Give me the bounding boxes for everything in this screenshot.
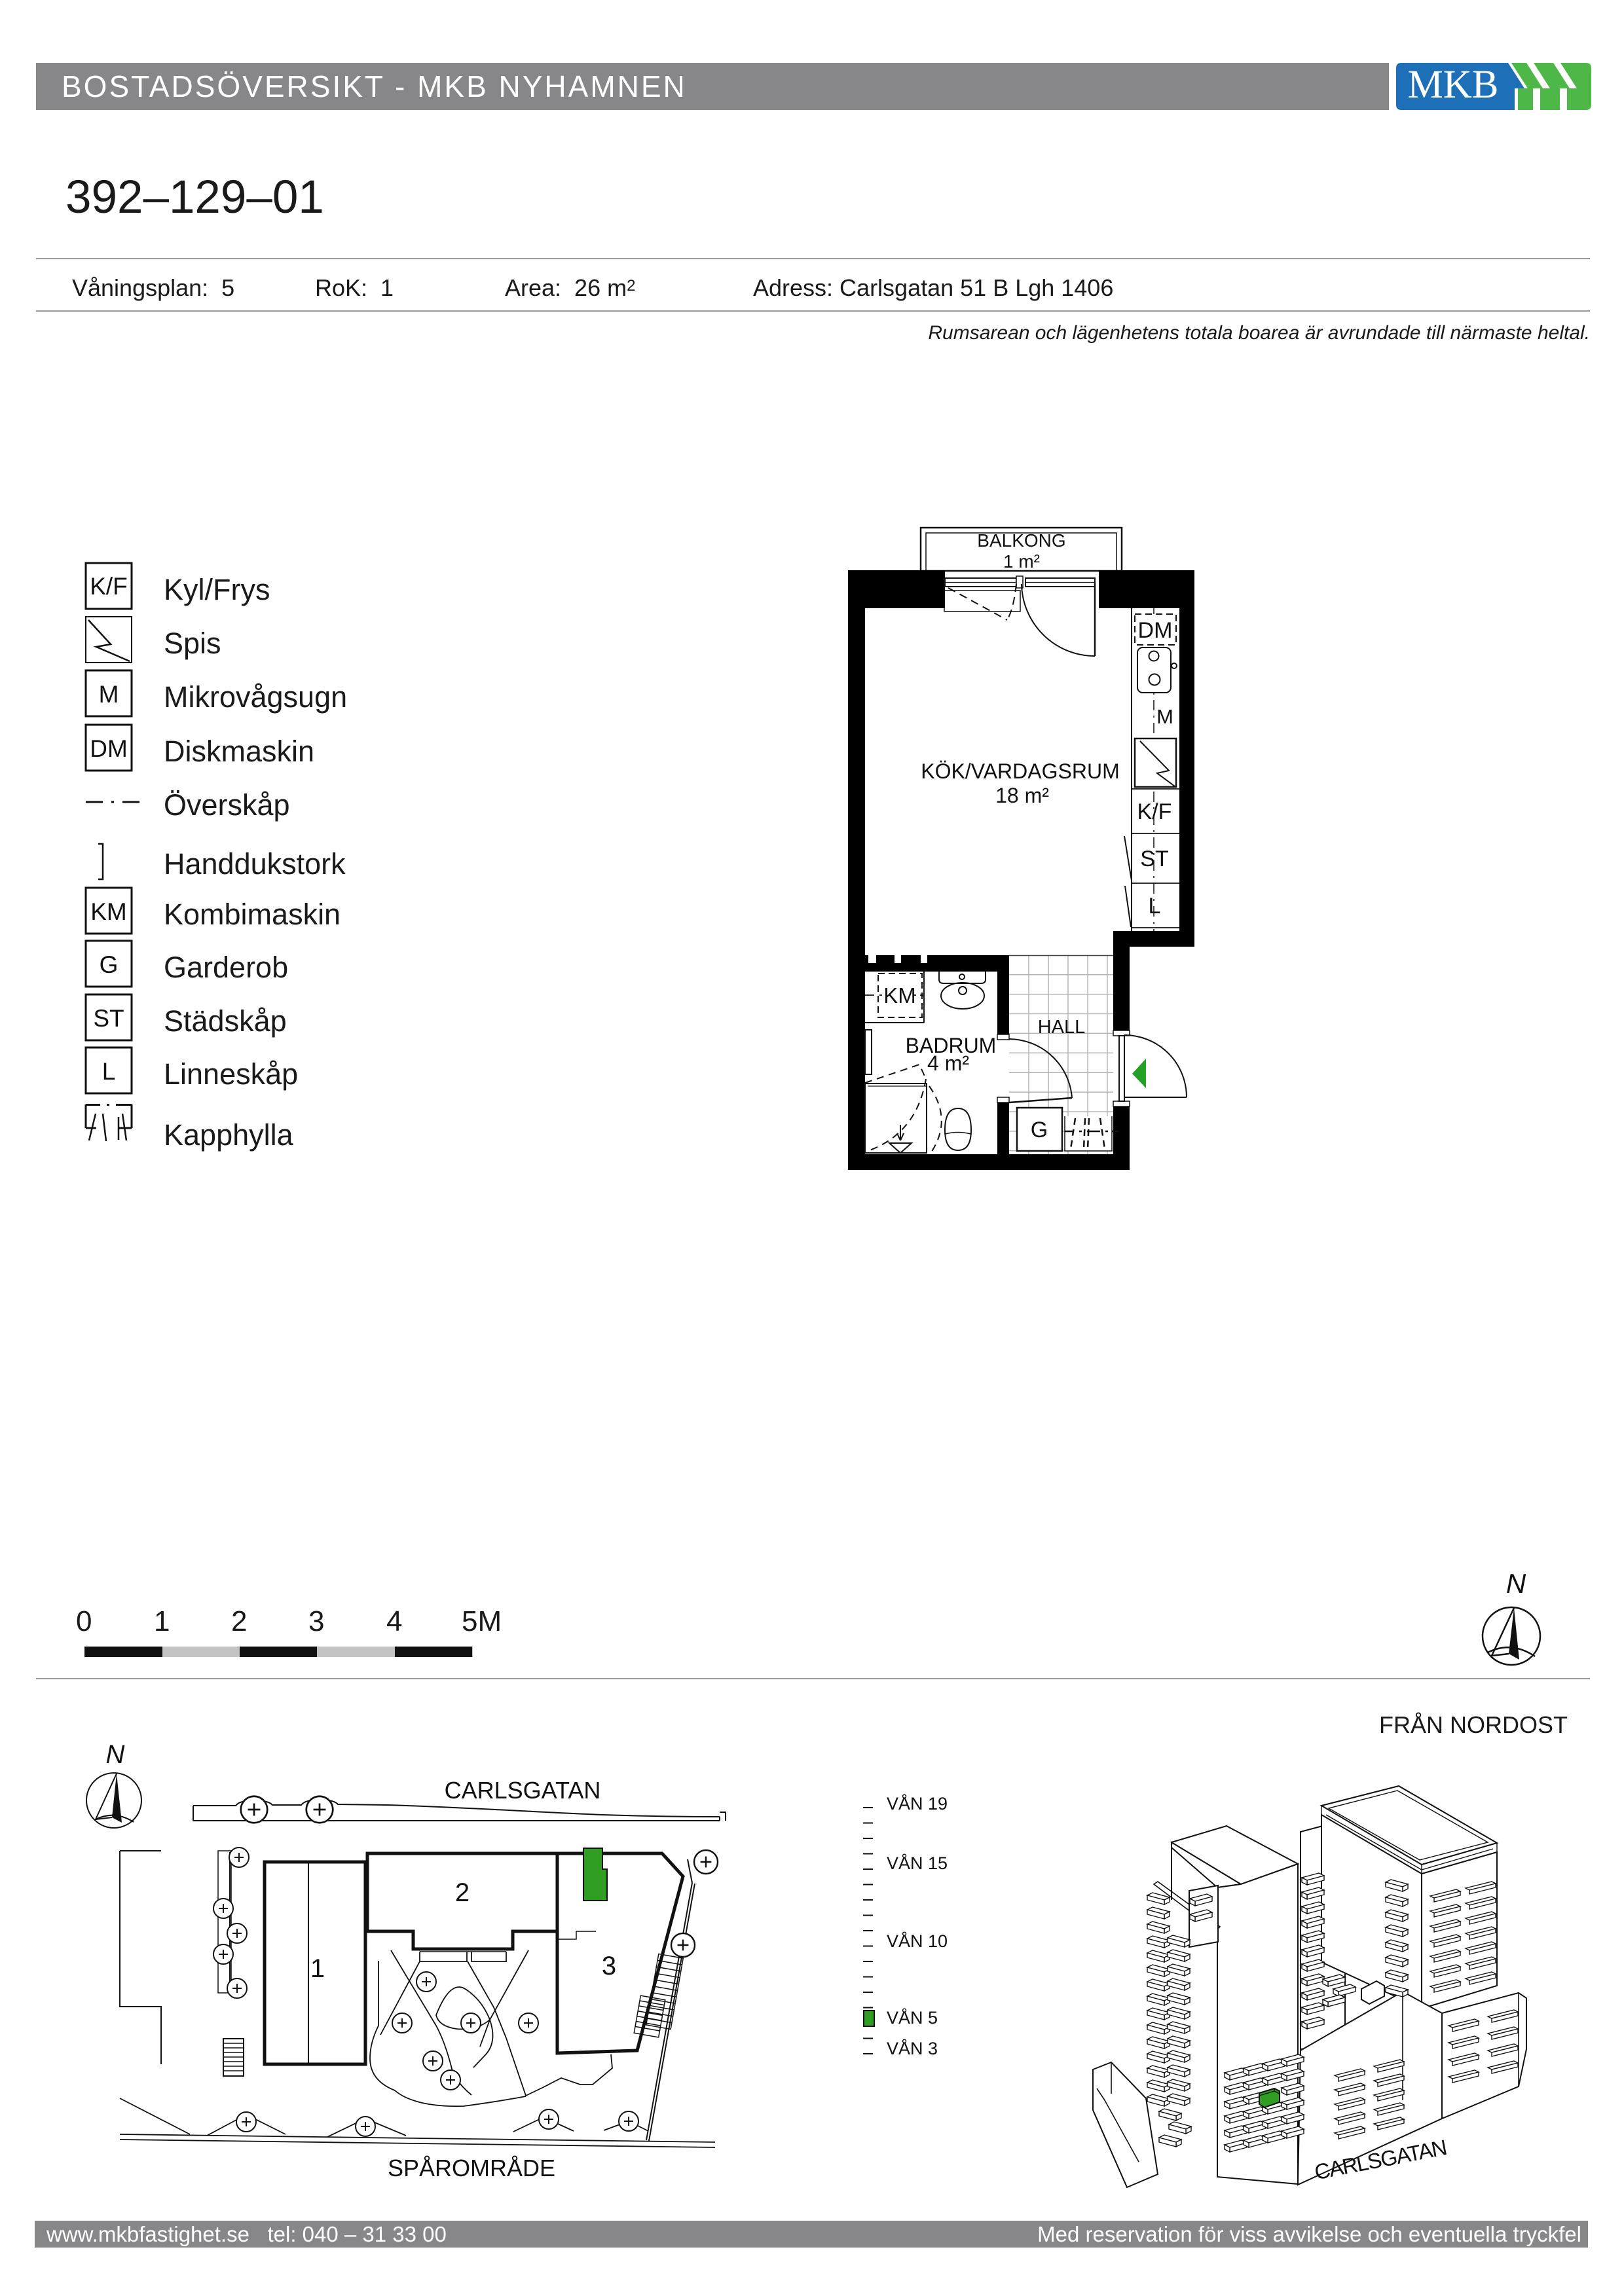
svg-text:ST: ST	[1140, 847, 1168, 871]
svg-text:CARLSGATAN: CARLSGATAN	[445, 1777, 601, 1804]
svg-text:2: 2	[455, 1878, 470, 1907]
svg-text:18 m²: 18 m²	[995, 784, 1049, 807]
svg-text:1 m²: 1 m²	[1003, 551, 1040, 572]
svg-text:VÅN 15: VÅN 15	[887, 1853, 948, 1873]
svg-text:N: N	[106, 1740, 125, 1769]
svg-text:G: G	[100, 951, 119, 978]
svg-text:N: N	[1506, 1571, 1526, 1599]
svg-text:K/F: K/F	[1137, 799, 1172, 824]
svg-text:M: M	[99, 681, 119, 708]
svg-text:KM: KM	[883, 983, 916, 1008]
svg-text:1: 1	[310, 1954, 325, 1983]
svg-text:ST: ST	[93, 1005, 124, 1032]
svg-text:HALL: HALL	[1038, 1017, 1086, 1038]
svg-text:SPÅROMRÅDE: SPÅROMRÅDE	[388, 2155, 555, 2181]
svg-text:BALKONG: BALKONG	[977, 530, 1065, 551]
svg-text:L: L	[102, 1058, 116, 1085]
svg-text:VÅN 5: VÅN 5	[887, 2007, 938, 2028]
svg-text:DM: DM	[1138, 618, 1173, 643]
svg-text:M: M	[1156, 705, 1173, 728]
svg-text:3: 3	[602, 1952, 616, 1980]
svg-text:MKB: MKB	[1408, 63, 1499, 107]
svg-text:KÖK/VARDAGSRUM: KÖK/VARDAGSRUM	[921, 759, 1119, 783]
svg-text:K/F: K/F	[90, 573, 128, 600]
svg-text:VÅN 19: VÅN 19	[887, 1793, 948, 1813]
svg-text:VÅN 10: VÅN 10	[887, 1931, 948, 1951]
svg-text:VÅN 3: VÅN 3	[887, 2038, 938, 2058]
svg-text:L: L	[1149, 894, 1161, 919]
svg-text:4 m²: 4 m²	[927, 1051, 969, 1075]
svg-text:KM: KM	[90, 898, 127, 925]
svg-text:DM: DM	[90, 735, 128, 762]
svg-text:G: G	[1031, 1118, 1048, 1142]
